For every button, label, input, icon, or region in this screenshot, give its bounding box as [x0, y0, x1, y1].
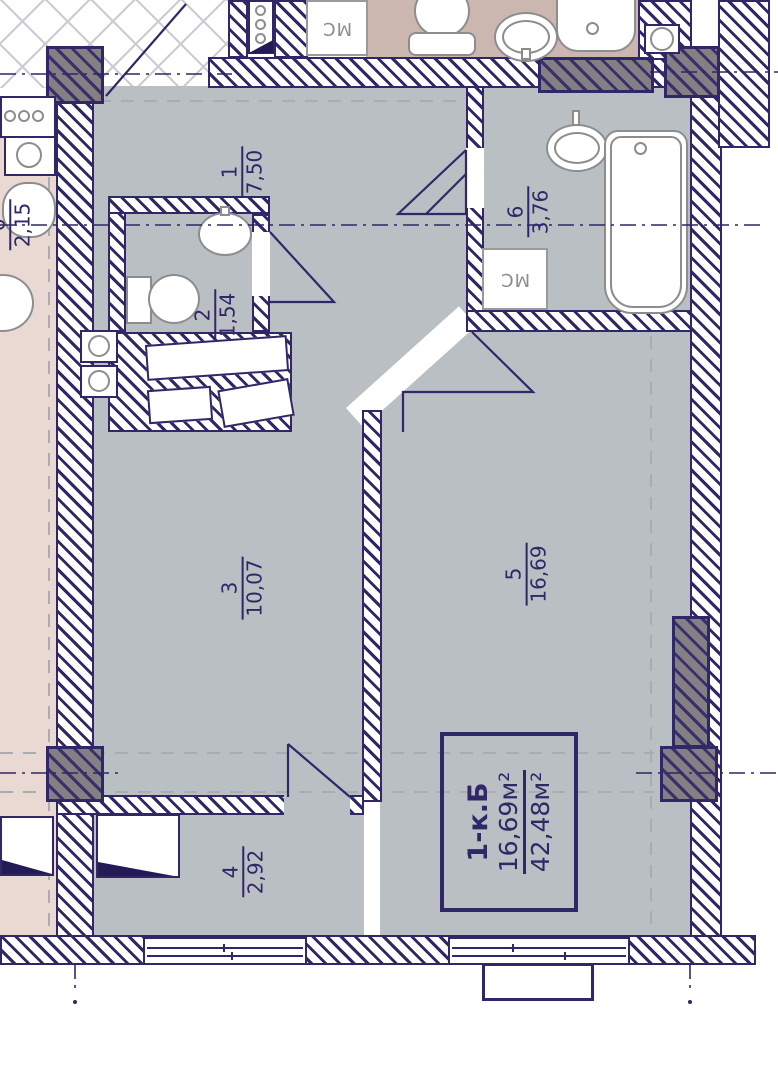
column-top-center — [538, 57, 654, 93]
wc-sink — [198, 212, 252, 256]
apartment-type: 1-к.Б — [463, 757, 494, 887]
top-right-fixture-circle — [650, 27, 674, 51]
apartment-total-area: 42,48м² — [526, 757, 555, 887]
axis-dot — [73, 1000, 77, 1004]
stair-dot — [255, 33, 266, 44]
room-3-label: 310,07 — [203, 548, 283, 628]
radiator-dot — [4, 110, 16, 122]
stair-wall-a — [228, 0, 248, 58]
room3-room4-opening — [284, 795, 350, 815]
room-3-area: 10,07 — [242, 556, 267, 619]
bath-sink-basin — [554, 132, 600, 164]
bathtub-inner — [610, 136, 682, 308]
wall-between-room3-room5 — [362, 410, 382, 802]
room-1-label: 17,50 — [202, 132, 282, 212]
vent-duct — [147, 386, 213, 424]
duct-box-bath: МС — [482, 248, 548, 310]
bath-wall-left-upper — [466, 86, 484, 150]
room-4-label: 42,92 — [203, 832, 283, 912]
radiator-dot — [18, 110, 30, 122]
room-3-number: 3 — [219, 556, 242, 619]
room-5-number: 5 — [503, 542, 526, 605]
bathtub-drain — [634, 142, 647, 155]
stair-wall-b — [274, 0, 308, 58]
adjacent-room-label: 62,15 — [0, 185, 50, 265]
overhead-dashed-line — [650, 336, 652, 934]
top-right-corner-wall — [718, 0, 770, 148]
column-left-square — [46, 746, 104, 802]
stairwell-crosshatch-area — [0, 0, 232, 88]
duct-label-bath: МС — [500, 269, 530, 290]
axis-dot — [688, 1000, 692, 1004]
room-2-number: 2 — [191, 290, 214, 341]
radiator-dot — [32, 110, 44, 122]
room-6-label: 63,76 — [488, 172, 568, 252]
adjacent-room-area: 2,15 — [9, 200, 34, 251]
room-2-area: 1,54 — [214, 290, 239, 341]
adjacent-room-number: 6 — [0, 200, 9, 251]
vent-hole-circle — [88, 370, 110, 392]
apartment-living-area: 16,69м² — [494, 770, 526, 874]
room-6-number: 6 — [504, 187, 527, 238]
bath-door-opening — [466, 148, 484, 208]
column-right-square — [660, 746, 718, 802]
room-6-area: 3,76 — [527, 187, 552, 238]
window-room5 — [448, 937, 630, 965]
room-4-area: 2,92 — [242, 847, 267, 898]
floor-plan-canvas: МС МС — [0, 0, 778, 1080]
stair-dot — [255, 19, 266, 30]
duct-label-top: МС — [322, 18, 352, 39]
bathtub-top-unit-drain — [586, 22, 599, 35]
overhead-dashed-line — [98, 100, 462, 102]
room-5-area: 16,69 — [526, 542, 551, 605]
column-right-pilaster — [672, 616, 710, 748]
sink-top-unit-tap — [521, 48, 531, 60]
apartment-info-box: 1-к.Б 16,69м² 42,48м² — [440, 732, 578, 912]
bottom-exterior-wall — [0, 935, 756, 965]
room-1-area: 7,50 — [241, 147, 266, 198]
right-exterior-wall — [690, 57, 722, 937]
duct-box-top: МС — [306, 0, 368, 56]
room-4-number: 4 — [219, 847, 242, 898]
wc-wall-left — [108, 196, 126, 332]
window-room4 — [143, 937, 307, 965]
bath-sink-tap — [572, 110, 580, 126]
wc-wall-right-upper — [252, 214, 270, 234]
stair-dot — [255, 5, 266, 16]
window-sill-projection — [482, 963, 594, 1001]
room-1-number: 1 — [218, 147, 241, 198]
vent-hole-circle — [88, 335, 110, 357]
toilet-top-unit-base — [408, 32, 476, 56]
room-5-label: 516,69 — [487, 534, 567, 614]
left-unit-appliance-circle — [16, 142, 42, 168]
room-2-label: 21,54 — [175, 275, 255, 355]
